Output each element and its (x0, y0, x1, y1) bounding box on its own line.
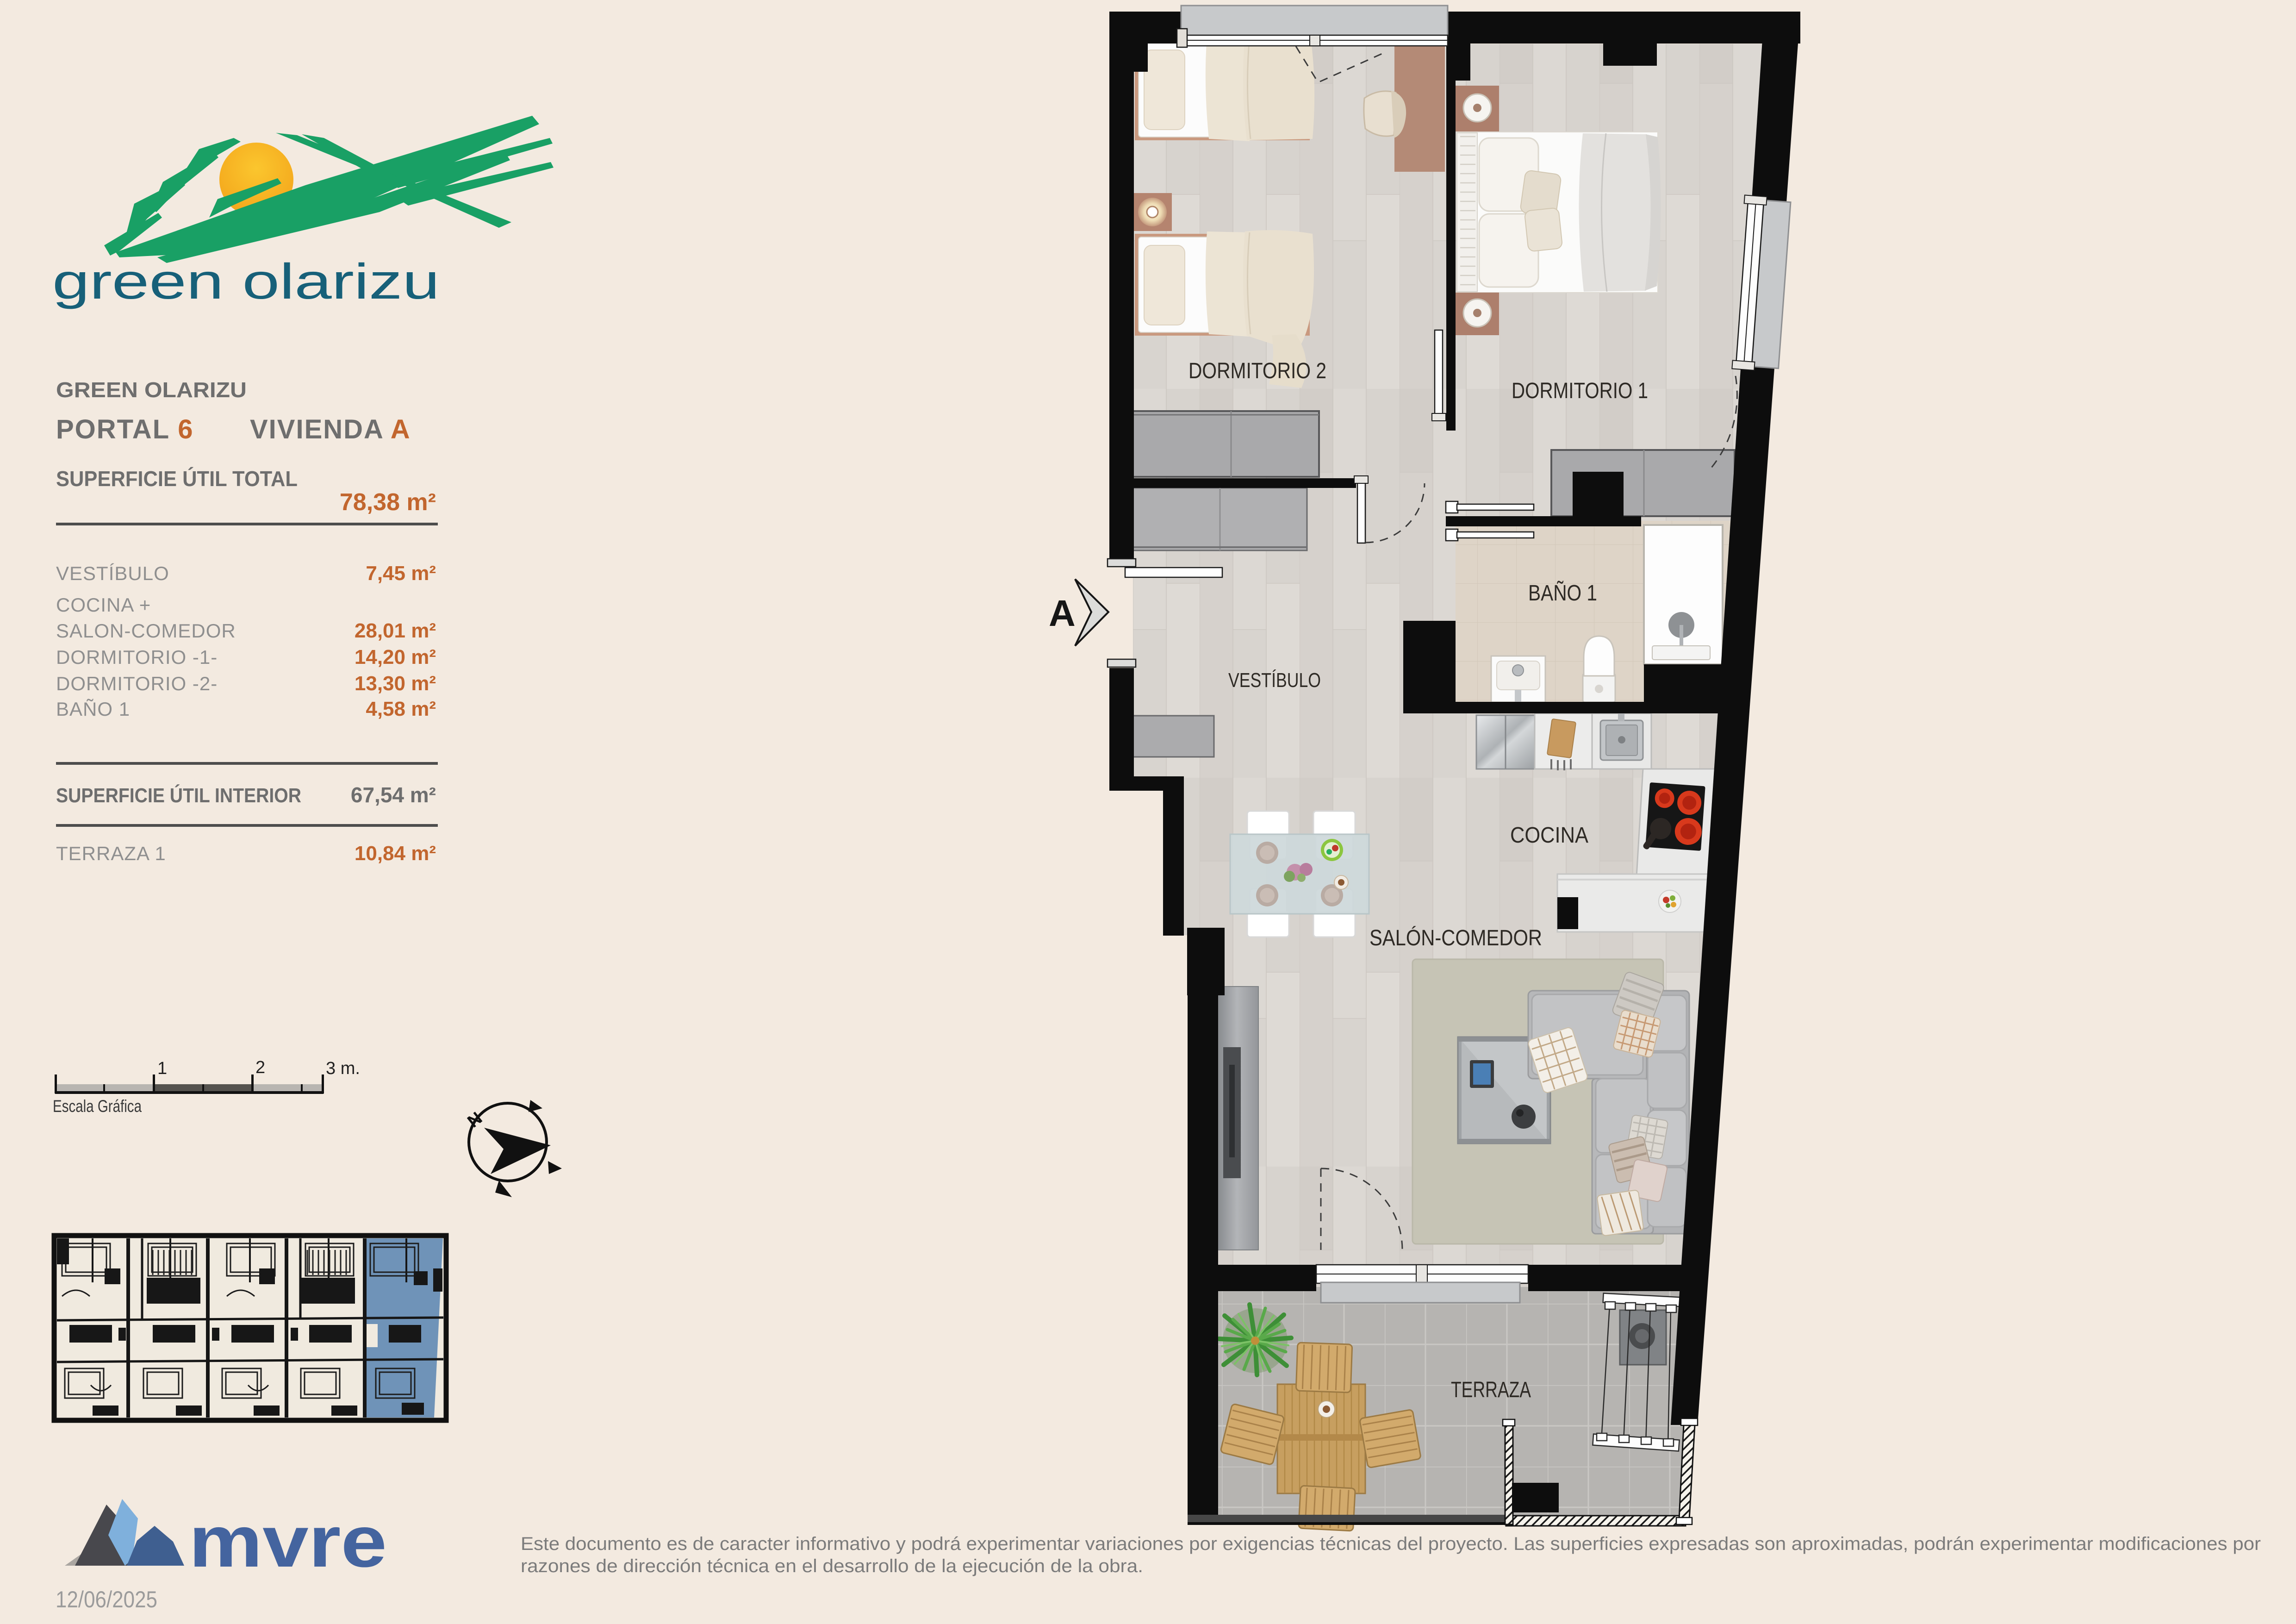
svg-text:COCINA +: COCINA + (56, 594, 151, 616)
svg-text:PORTAL 6: PORTAL 6 (56, 414, 193, 444)
svg-text:GREEN OLARIZU: GREEN OLARIZU (56, 378, 247, 402)
svg-text:green olarizu: green olarizu (52, 253, 440, 309)
svg-text:BAÑO 1: BAÑO 1 (56, 698, 130, 720)
svg-text:TERRAZA 1: TERRAZA 1 (56, 843, 166, 864)
svg-text:13,30 m²: 13,30 m² (355, 672, 436, 695)
svg-text:DORMITORIO 2: DORMITORIO 2 (1188, 359, 1326, 383)
svg-text:DORMITORIO -1-: DORMITORIO -1- (56, 646, 218, 668)
svg-text:TERRAZA: TERRAZA (1451, 1378, 1531, 1402)
svg-text:Este documento es de caracter: Este documento es de caracter informativ… (521, 1534, 2261, 1554)
svg-text:Escala Gráfica: Escala Gráfica (53, 1097, 142, 1116)
svg-text:SUPERFICIE ÚTIL TOTAL: SUPERFICIE ÚTIL TOTAL (56, 467, 298, 491)
svg-text:SALÓN-COMEDOR: SALÓN-COMEDOR (1369, 925, 1542, 950)
svg-text:28,01 m²: 28,01 m² (355, 619, 436, 642)
svg-text:7,45 m²: 7,45 m² (366, 562, 436, 585)
svg-text:12/06/2025: 12/06/2025 (56, 1587, 157, 1612)
svg-text:4,58 m²: 4,58 m² (366, 698, 436, 720)
svg-text:10,84 m²: 10,84 m² (355, 842, 436, 865)
svg-text:VESTÍBULO: VESTÍBULO (1228, 669, 1321, 692)
svg-text:razones de dirección técnica e: razones de dirección técnica en el desar… (521, 1556, 1143, 1576)
svg-text:2: 2 (255, 1058, 265, 1077)
svg-text:SALON-COMEDOR: SALON-COMEDOR (56, 620, 236, 642)
svg-text:DORMITORIO -2-: DORMITORIO -2- (56, 673, 218, 694)
svg-text:mvre: mvre (189, 1501, 387, 1582)
svg-text:67,54 m²: 67,54 m² (351, 783, 436, 807)
svg-text:BAÑO 1: BAÑO 1 (1528, 581, 1597, 606)
svg-text:1: 1 (157, 1059, 167, 1078)
svg-text:A: A (1049, 593, 1076, 634)
svg-text:SUPERFICIE ÚTIL INTERIOR: SUPERFICIE ÚTIL INTERIOR (56, 784, 301, 807)
svg-text:VESTÍBULO: VESTÍBULO (56, 562, 169, 584)
svg-text:14,20 m²: 14,20 m² (355, 646, 436, 668)
svg-text:DORMITORIO 1: DORMITORIO 1 (1512, 379, 1648, 403)
svg-text:3 m.: 3 m. (326, 1059, 360, 1078)
svg-text:78,38 m²: 78,38 m² (340, 489, 436, 516)
svg-text:VIVIENDA A: VIVIENDA A (250, 414, 411, 444)
svg-text:COCINA: COCINA (1510, 823, 1588, 848)
